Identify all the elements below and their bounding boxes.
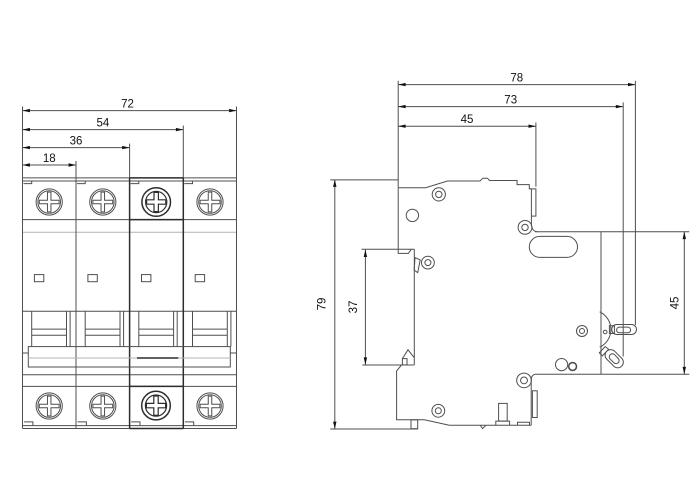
svg-text:36: 36 (70, 135, 83, 147)
svg-text:37: 37 (348, 301, 360, 314)
svg-text:79: 79 (317, 298, 329, 311)
svg-text:18: 18 (43, 153, 56, 165)
svg-text:45: 45 (461, 114, 474, 126)
svg-text:45: 45 (670, 297, 682, 310)
svg-text:72: 72 (121, 98, 134, 110)
svg-text:54: 54 (97, 117, 110, 129)
svg-text:73: 73 (504, 94, 517, 106)
svg-text:78: 78 (510, 72, 523, 84)
